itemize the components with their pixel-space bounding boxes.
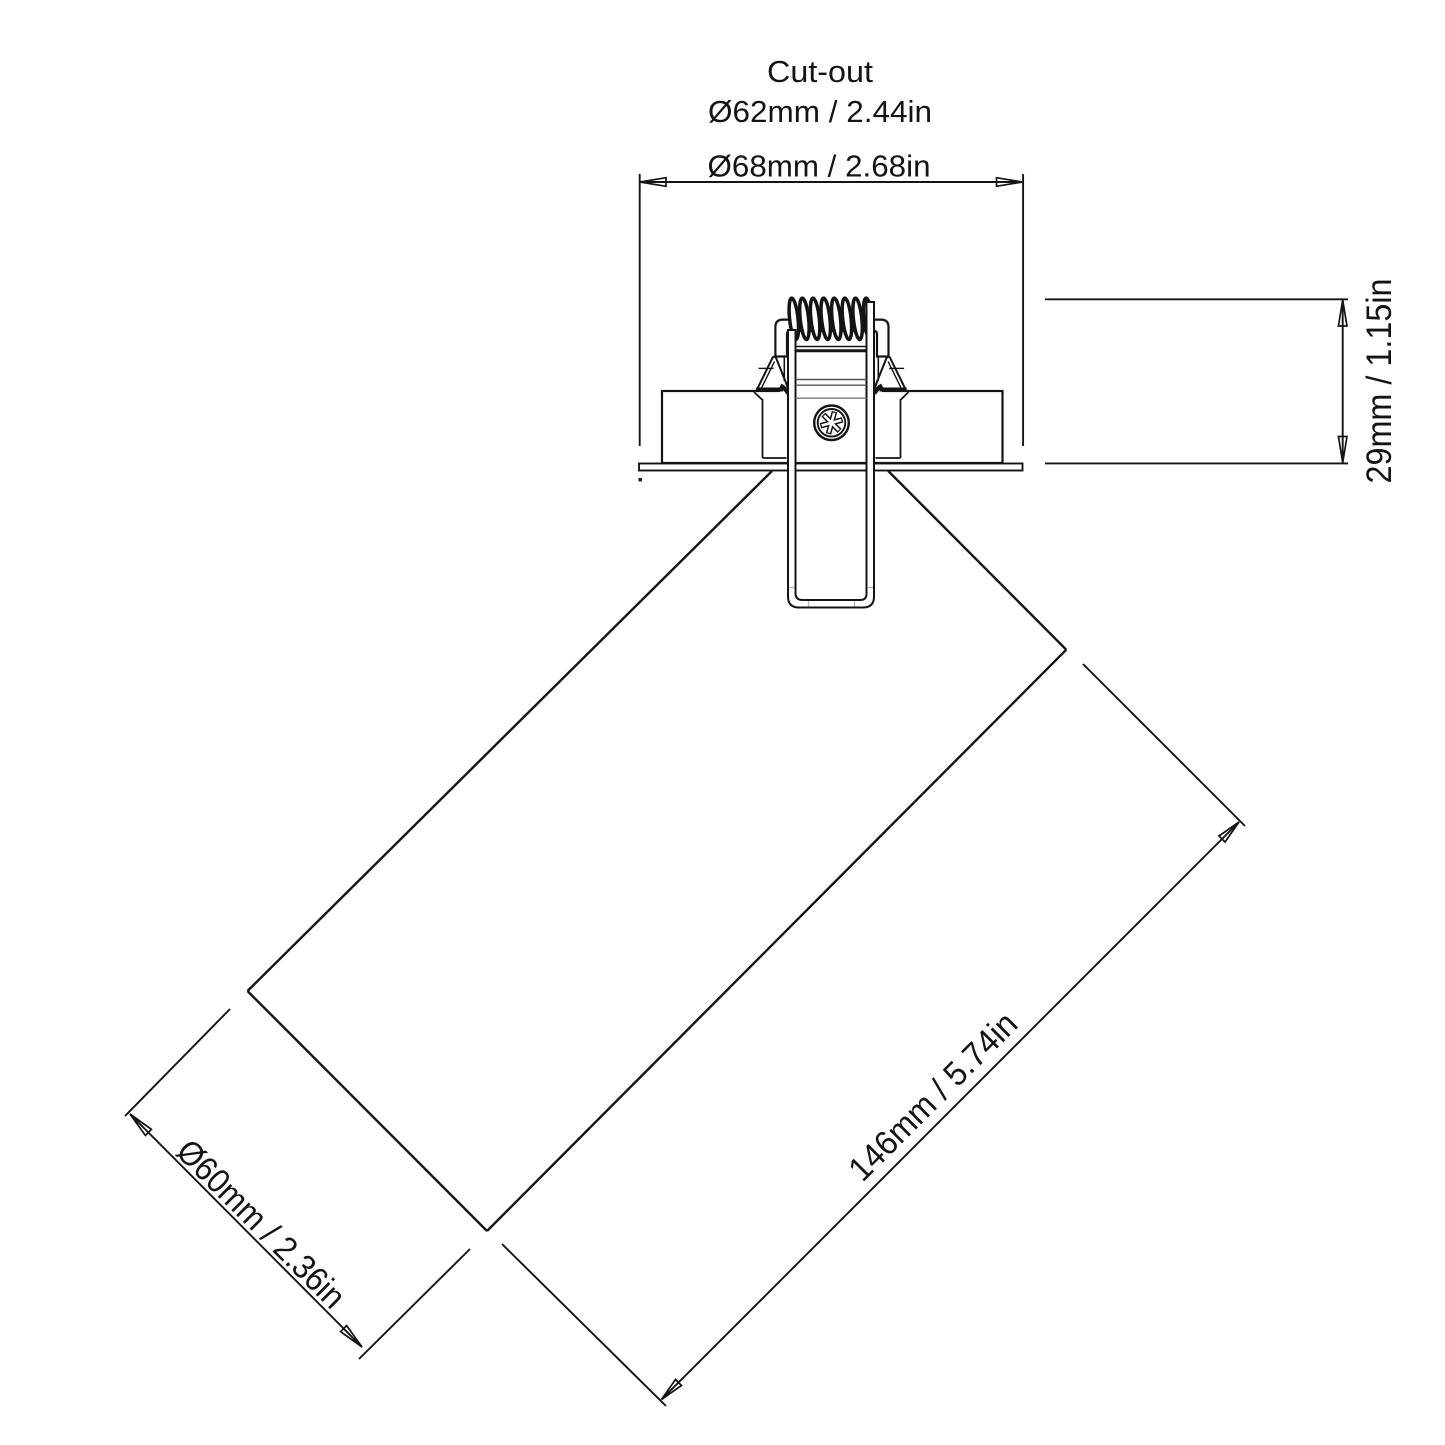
- svg-text:Ø68mm / 2.68in: Ø68mm / 2.68in: [708, 149, 931, 184]
- svg-text:Ø62mm / 2.44in: Ø62mm / 2.44in: [708, 94, 932, 129]
- svg-text:29mm / 1.15in: 29mm / 1.15in: [1360, 279, 1399, 484]
- svg-text:Cut-out: Cut-out: [767, 54, 873, 89]
